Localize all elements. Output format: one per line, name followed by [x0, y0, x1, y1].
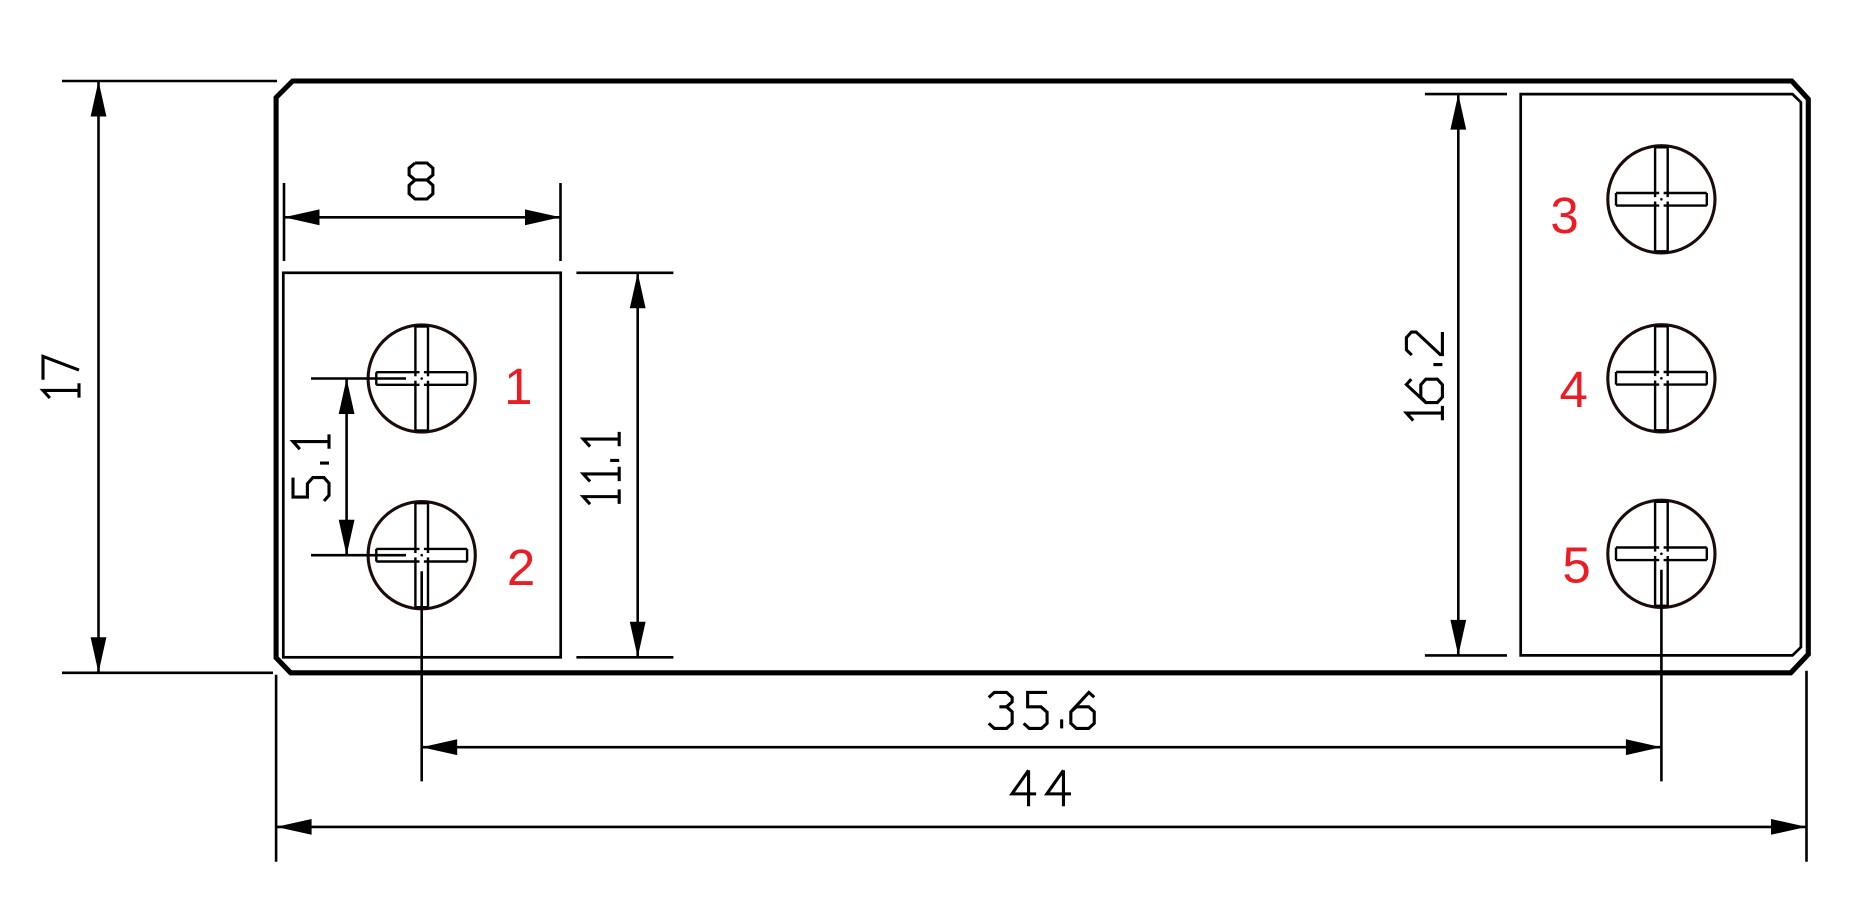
svg-text:1: 1: [504, 358, 532, 415]
svg-text:3: 3: [1550, 187, 1578, 244]
svg-text:4: 4: [1560, 361, 1588, 418]
svg-text:5: 5: [1562, 537, 1590, 594]
svg-text:2: 2: [507, 539, 535, 596]
